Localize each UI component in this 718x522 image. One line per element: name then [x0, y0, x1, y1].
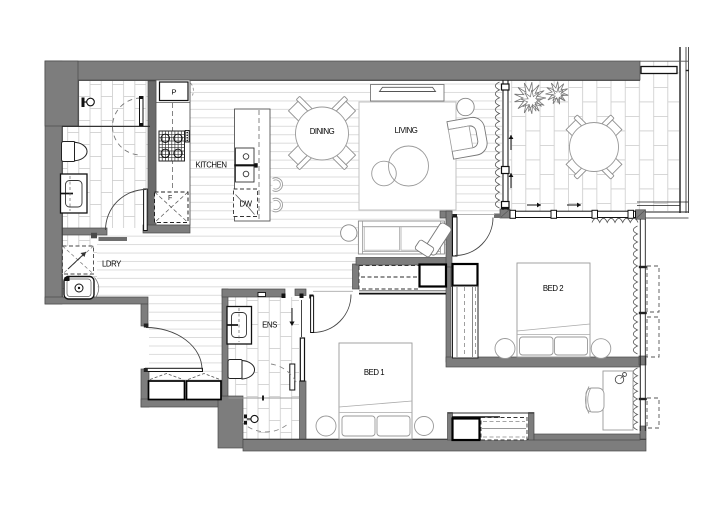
svg-text:ENS: ENS	[262, 321, 277, 330]
svg-text:P: P	[171, 88, 176, 97]
svg-text:BED 2: BED 2	[543, 284, 563, 293]
svg-text:DINING: DINING	[310, 127, 335, 136]
svg-text:LIVING: LIVING	[395, 126, 418, 135]
svg-text:F: F	[168, 195, 172, 202]
svg-text:KITCHEN: KITCHEN	[195, 161, 226, 170]
svg-text:LDRY: LDRY	[102, 260, 122, 269]
svg-text:BED 1: BED 1	[364, 368, 384, 377]
